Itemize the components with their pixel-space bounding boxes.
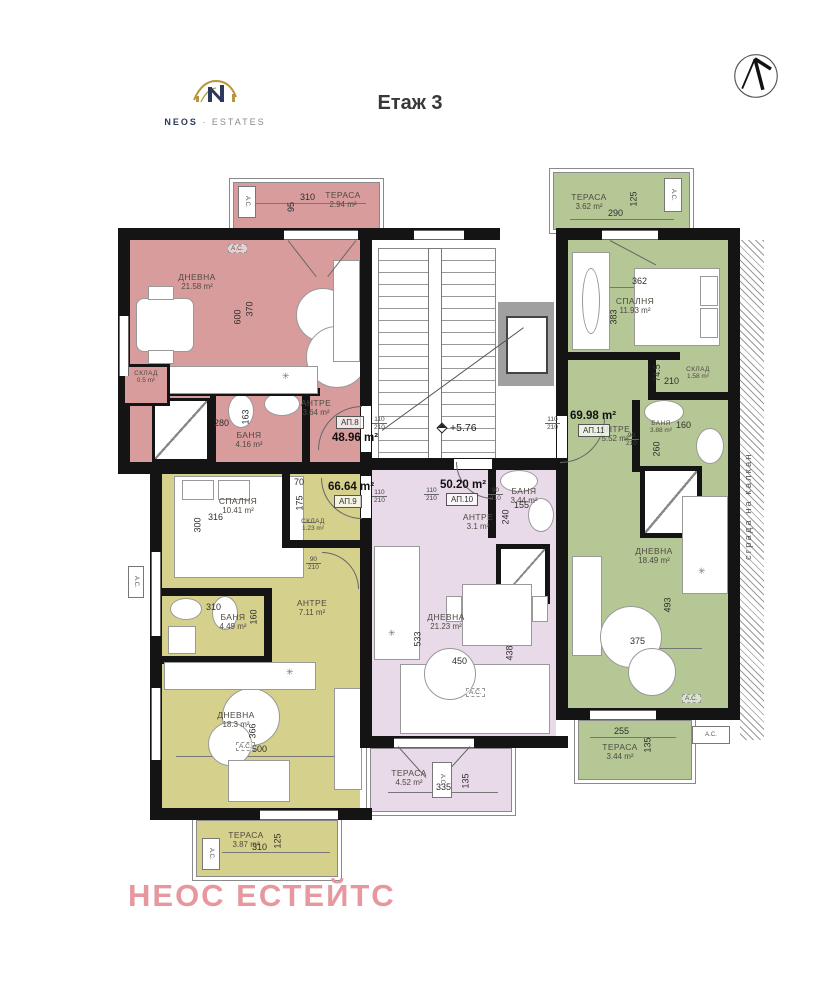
room-label-ap9-living: ДНЕВНА18.3 m² <box>200 710 272 730</box>
ap10-door2-dims: 90210 <box>488 487 503 502</box>
neos-estates-logo: NEOS · ESTATES <box>150 76 280 127</box>
dimension: 135 <box>643 737 653 752</box>
level-value: +5.76 <box>450 422 477 434</box>
dimension: 316 <box>208 512 223 522</box>
dimension: 210 <box>664 376 679 386</box>
dimension: 300 <box>193 517 203 532</box>
ap10-total-area: 50.20 m² <box>440 479 486 491</box>
room-label-ap8-living: ДНЕВНА21.58 m² <box>152 272 242 292</box>
dimension: 163 <box>241 409 251 424</box>
table <box>228 760 290 802</box>
pillow <box>700 308 718 338</box>
room-label-ap10-antre: АНТРЕ3.1 m² <box>448 512 508 532</box>
logo-building-icon <box>178 76 252 112</box>
ap10-badge: АП.10 <box>446 493 478 506</box>
ap8-badge: АП.8 <box>336 416 364 429</box>
sofa <box>572 556 602 656</box>
logo-separator: · <box>202 117 207 127</box>
ap9-badge: АП.9 <box>334 495 362 508</box>
dimension: 260 <box>652 441 662 456</box>
north-arrow-icon <box>733 53 779 104</box>
dimension-line <box>590 737 676 738</box>
logo-name: NEOS <box>164 117 198 127</box>
floor-plan-canvas: NEOS · ESTATES Етаж 3 сграда на калкан +… <box>0 0 840 1000</box>
dimension: 160 <box>676 420 691 430</box>
room-label-ap10-terrace: ТЕРАСА4.52 m² <box>376 768 442 788</box>
mirror <box>582 268 600 334</box>
window <box>414 230 464 240</box>
room-label-ap8-terrace: ТЕРАСА2.94 m² <box>312 190 374 210</box>
dimension-line <box>570 219 674 220</box>
dimension: 335 <box>436 782 451 792</box>
dimension: 160 <box>249 609 259 624</box>
dimension-line <box>176 756 356 757</box>
ap9-total-area: 66.64 m² <box>328 481 374 493</box>
partition <box>264 588 272 664</box>
ac-label: A.C. <box>682 694 701 703</box>
room-label-ap8-antre: АНТРЕ3.64 m² <box>288 398 344 418</box>
dimension: 600 <box>233 309 243 324</box>
washbasin <box>170 598 202 620</box>
dimension: 493 <box>663 597 673 612</box>
armchair <box>628 648 676 696</box>
ac-unit: A.C. <box>664 178 682 212</box>
page-title: Етаж 3 <box>330 92 490 115</box>
dimension: 74.5 <box>652 364 662 382</box>
logo-text: NEOS · ESTATES <box>150 117 280 127</box>
dimension-line <box>222 852 330 853</box>
ap8-door-dims: 110210 <box>372 416 387 431</box>
dimension: 155 <box>514 500 529 510</box>
washing-machine <box>168 626 196 654</box>
partition <box>648 392 728 400</box>
room-label-ap11-storage: СКЛАД1.58 m² <box>672 366 724 380</box>
window <box>602 230 658 240</box>
vent-icon: ✳ <box>698 566 706 577</box>
ac-unit: A.C. <box>692 726 730 744</box>
elevator-car <box>506 316 548 374</box>
ap11-door2-dims: 90210 <box>624 432 639 447</box>
dimension: 438 <box>505 645 515 660</box>
ap8-total-area: 48.96 m² <box>332 432 378 444</box>
room-label-ap8-bath: БАНЯ4.16 m² <box>218 430 280 450</box>
ap11-total-area: 69.98 m² <box>570 410 616 422</box>
level-mark: +5.76 <box>438 422 477 434</box>
dimension: 450 <box>452 656 467 666</box>
dimension: 533 <box>413 631 423 646</box>
partition <box>210 396 216 462</box>
dimension: 255 <box>614 726 629 736</box>
dimension: 240 <box>501 509 511 524</box>
level-marker-icon <box>436 423 447 434</box>
dimension: 125 <box>273 833 283 848</box>
sofa <box>334 688 362 790</box>
dimension: 370 <box>245 301 255 316</box>
room-label-ap9-antre: АНТРЕ7.11 m² <box>282 598 342 618</box>
dimension: 375 <box>630 636 645 646</box>
wall <box>728 228 740 720</box>
wall <box>556 228 568 720</box>
side-note: сграда на калкан <box>743 390 754 560</box>
window <box>119 316 129 376</box>
dimension: 310 <box>206 602 221 612</box>
ac-unit: A.C. <box>128 566 144 598</box>
dimension: 280 <box>214 418 229 428</box>
dimension: 175 <box>295 495 305 510</box>
room-label-ap10-living: ДНЕВНА21.23 m² <box>410 612 482 632</box>
ap9-door2-dims: 90210 <box>306 556 321 571</box>
ac-unit: A.C. <box>238 186 256 218</box>
dimension: 125 <box>629 191 639 206</box>
ap11-badge: АП.11 <box>578 424 610 437</box>
kitchen-counter <box>158 366 318 394</box>
vent-icon: ✳ <box>282 371 290 382</box>
ap11-door-dims: 110210 <box>545 416 560 431</box>
window <box>151 688 161 760</box>
window <box>260 810 338 820</box>
room-label-ap8-storage: СКЛАД0.5 m² <box>124 370 168 384</box>
chair <box>148 350 174 364</box>
ap8-shower <box>152 398 210 462</box>
door-opening <box>361 406 371 452</box>
vent-icon: ✳ <box>286 667 294 678</box>
partition <box>282 540 368 548</box>
dimension: 95 <box>286 202 296 212</box>
kitchen-counter <box>682 496 728 594</box>
partition <box>162 588 272 596</box>
toilet <box>696 428 724 464</box>
chair <box>532 596 548 622</box>
dimension: 500 <box>252 744 267 754</box>
dimension: 70 <box>294 477 304 487</box>
vent-icon: ✳ <box>388 628 396 639</box>
dimension: 366 <box>248 723 258 738</box>
ap10-door-dims: 110210 <box>424 487 439 502</box>
dimension: 310 <box>300 192 315 202</box>
wall <box>150 462 162 820</box>
ac-label: A.C. <box>466 688 485 697</box>
dimension: 310 <box>252 842 267 852</box>
room-label-ap9-terrace: ТЕРАСА3.87 m² <box>212 830 280 850</box>
partition <box>282 474 290 548</box>
room-label-ap9-storage: СКЛАД1.23 m² <box>288 518 338 532</box>
logo-suffix: ESTATES <box>212 117 266 127</box>
watermark: НЕОС ЕСТЕЙТС <box>128 878 396 914</box>
dimension: 362 <box>632 276 647 286</box>
ap9-door-dims: 110210 <box>372 489 387 504</box>
ac-label: A.C. <box>228 244 247 253</box>
table <box>136 298 194 352</box>
window <box>590 710 656 720</box>
window <box>394 738 474 748</box>
dimension: 290 <box>608 208 623 218</box>
window <box>284 230 358 240</box>
pillow <box>700 276 718 306</box>
sofa <box>333 260 360 362</box>
room-label-ap11-living: ДНЕВНА18.49 m² <box>618 546 690 566</box>
dimension: 135 <box>461 773 471 788</box>
window <box>151 552 161 636</box>
dimension: 383 <box>609 309 619 324</box>
partition <box>568 352 680 360</box>
